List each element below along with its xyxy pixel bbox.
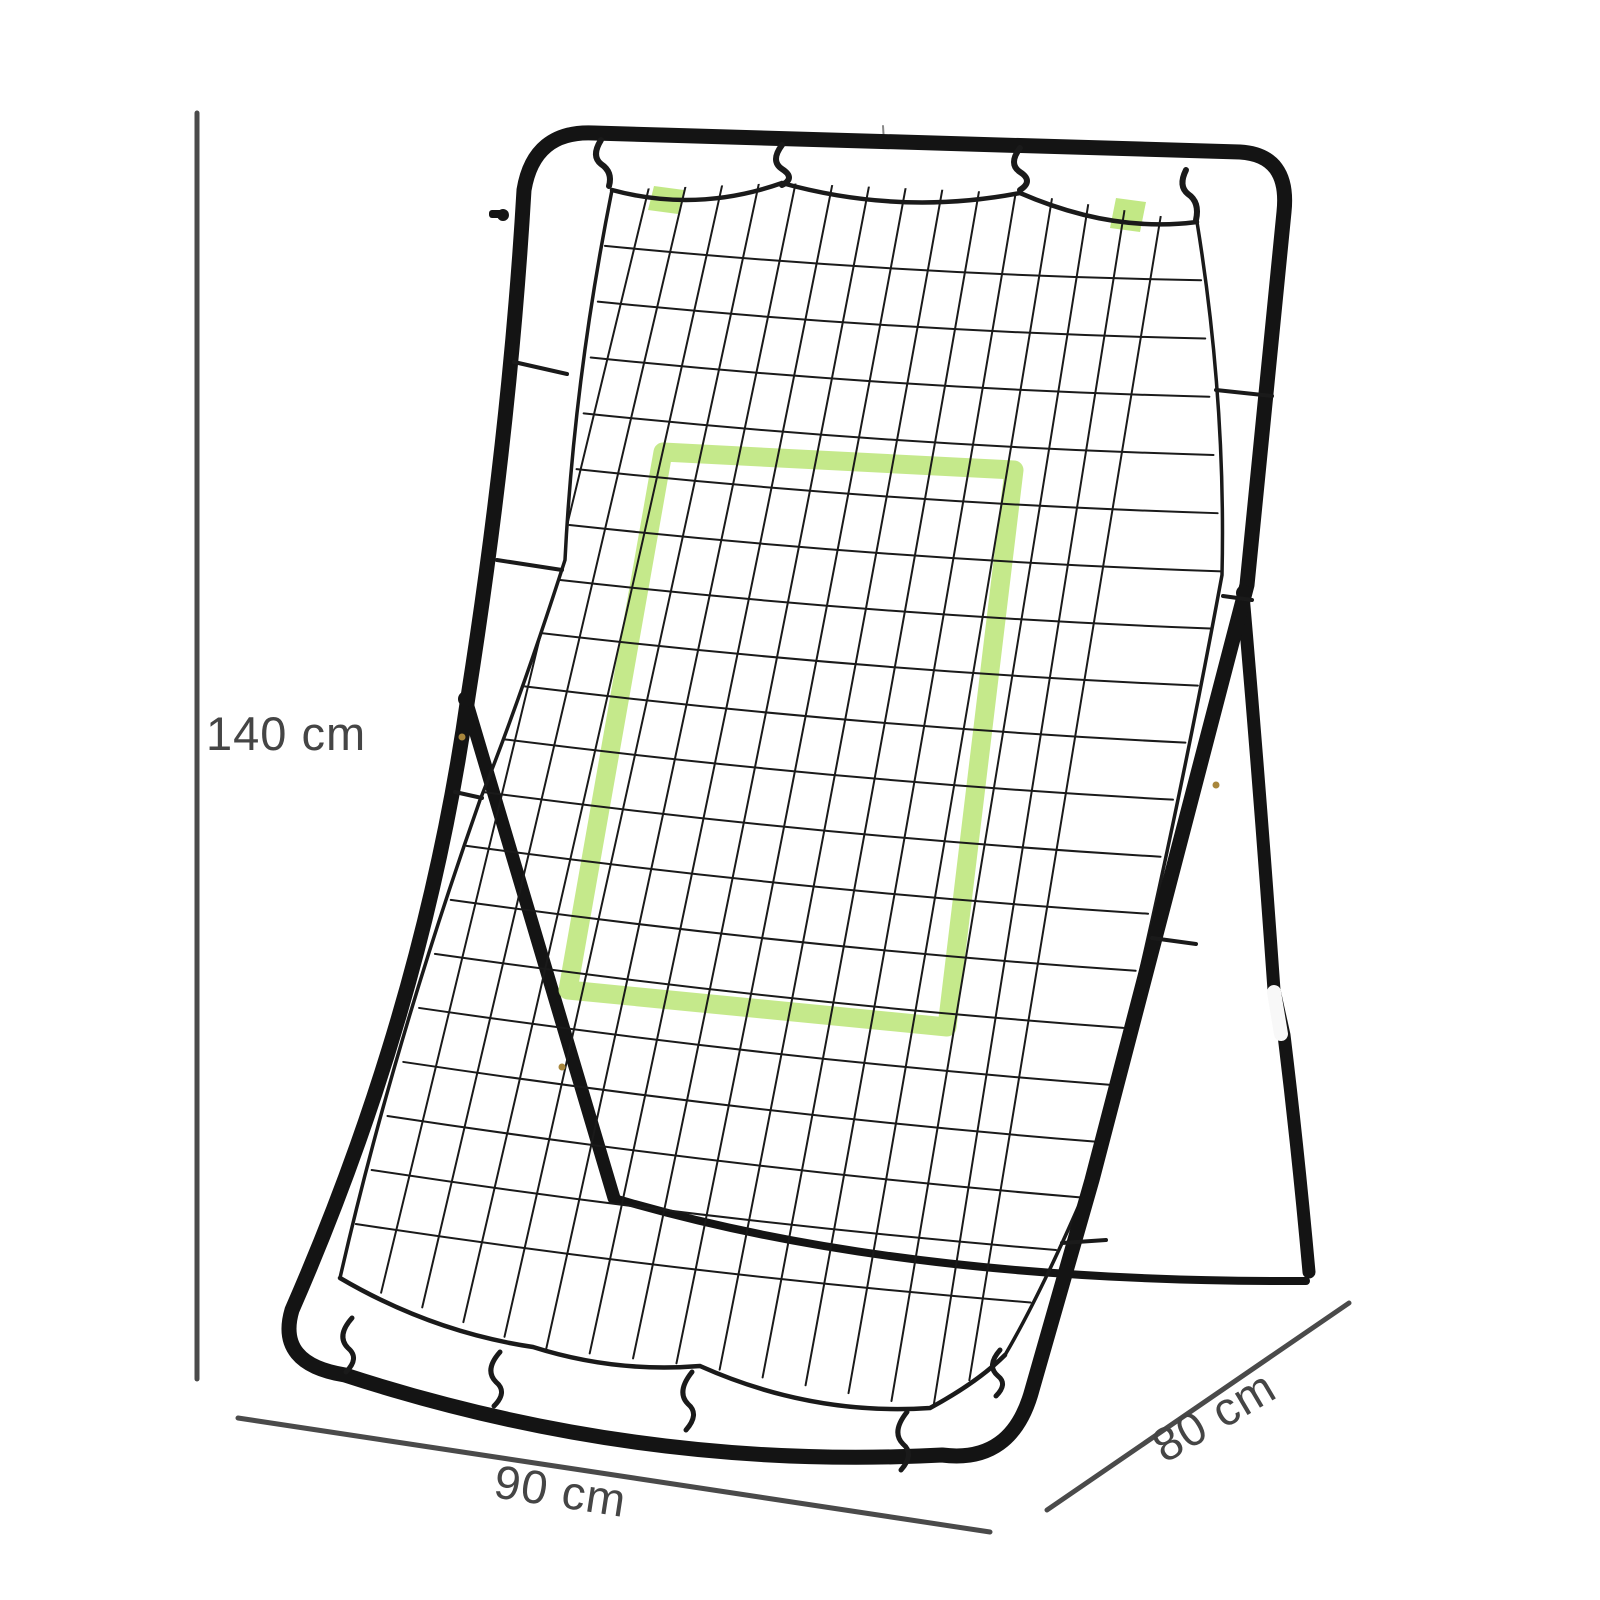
gold-rivet	[459, 734, 466, 741]
frame-tube-joint	[883, 126, 884, 142]
target-tab-right	[1110, 198, 1146, 232]
fold-hinge-left	[458, 691, 474, 707]
kickstand-adjust-collar	[1274, 992, 1281, 1034]
product-illustration: 140 cm 90 cm 80 cm	[0, 0, 1600, 1600]
height-dimension-label: 140 cm	[206, 707, 366, 760]
gold-rivet	[1213, 782, 1220, 789]
gold-rivet	[559, 1064, 566, 1071]
background	[0, 0, 1600, 1600]
product-dimension-diagram: 140 cm 90 cm 80 cm	[0, 0, 1600, 1600]
bolt-stub-left	[489, 210, 507, 218]
